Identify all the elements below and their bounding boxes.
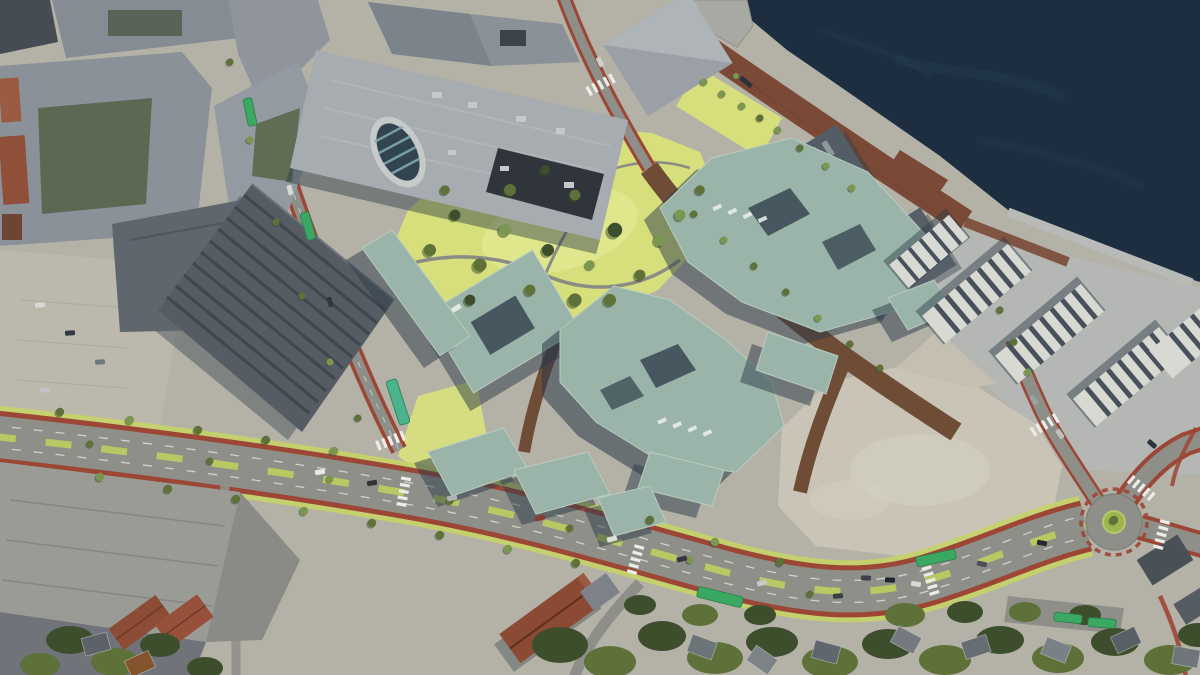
red-building xyxy=(0,77,22,122)
red-building xyxy=(0,135,29,205)
aerial-render xyxy=(0,0,1200,675)
scene-canvas xyxy=(0,0,1200,675)
